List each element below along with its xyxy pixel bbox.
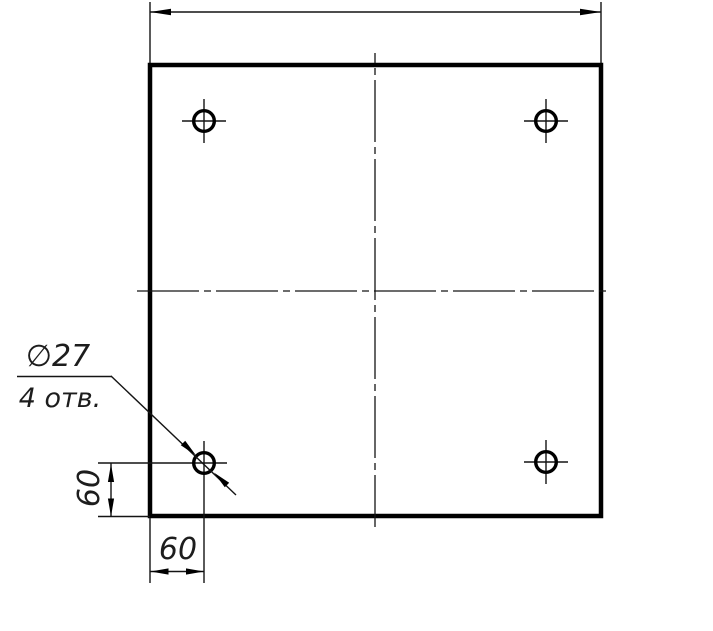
- hole-count-label: 4 отв.: [19, 383, 102, 414]
- dim-offset-x: 60: [150, 518, 204, 583]
- hole-diameter-label: ∅27: [26, 339, 90, 374]
- dim-y-value: 60: [72, 469, 107, 507]
- dim-arrow-right-icon: [580, 9, 601, 15]
- dim-arrow-up-icon: [108, 464, 114, 482]
- hole-top-right: [524, 99, 568, 143]
- hole-bottom-right: [524, 440, 568, 484]
- leader-arrow-lower-icon: [214, 473, 229, 488]
- dim-offset-y: 60: [72, 463, 150, 517]
- leader-line: [111, 376, 236, 495]
- dim-arrow-down-icon: [108, 499, 114, 517]
- drawing-canvas: ∅27 4 отв. 60 60: [0, 0, 713, 631]
- leader-arrow-upper-icon: [181, 441, 196, 456]
- dim-x-value: 60: [159, 532, 197, 567]
- dim-arrow-left-icon: [151, 568, 169, 574]
- hole-top-left: [182, 99, 226, 143]
- dim-arrow-right-icon: [186, 568, 204, 574]
- technical-drawing: ∅27 4 отв. 60 60: [0, 0, 713, 631]
- dim-arrow-left-icon: [150, 9, 171, 15]
